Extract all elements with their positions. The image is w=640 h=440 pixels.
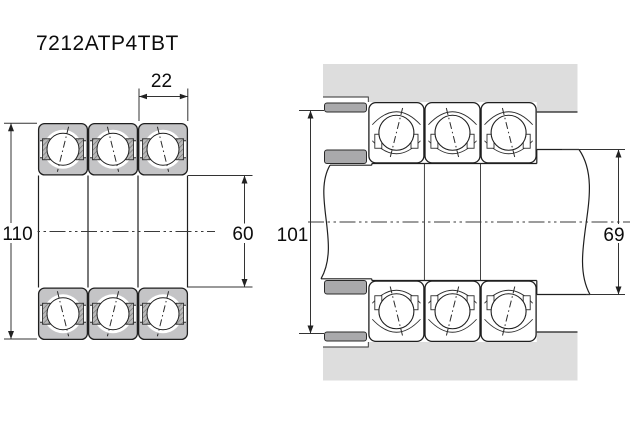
bearing-cell <box>369 103 424 163</box>
bearing-width-label: 22 <box>151 71 172 92</box>
bore-diameter-label: 60 <box>232 224 253 245</box>
dim-outer-diameter: 110 <box>1 123 37 339</box>
bearing-cell <box>425 281 480 341</box>
dim-bore-diameter: 60 <box>188 176 255 288</box>
bearing-cell <box>139 124 188 175</box>
bearing-cell <box>39 124 88 175</box>
bearing-cell <box>481 103 536 163</box>
inner-spacer-top <box>325 150 367 164</box>
bearing-cell <box>39 288 88 339</box>
arrow-up-icon <box>8 123 14 131</box>
arrow-up-icon <box>242 176 248 184</box>
abutment-diameter-label: 101 <box>277 225 309 246</box>
bearing-cell <box>89 124 138 175</box>
ball <box>147 133 179 165</box>
inner-spacer-bottom <box>325 281 367 295</box>
arrow-down-icon <box>616 287 622 295</box>
arrow-down-icon <box>308 326 314 334</box>
outer-spacer-bottom <box>325 332 367 341</box>
ball <box>97 298 129 330</box>
outer-spacer-top <box>325 103 367 112</box>
ball <box>97 133 129 165</box>
ball <box>47 133 79 165</box>
dim-bearing-width: 22 <box>139 71 188 121</box>
mounting-view: 101 69 <box>277 64 630 381</box>
bearing-cell <box>425 103 480 163</box>
ball <box>147 298 179 330</box>
arrow-up-icon <box>616 150 622 158</box>
shaft-shoulder-label: 69 <box>603 225 624 246</box>
arrow-right-icon <box>180 94 188 100</box>
bearing-cell <box>89 288 138 339</box>
arrow-down-icon <box>242 279 248 287</box>
arrow-down-icon <box>8 331 14 339</box>
arrow-up-icon <box>308 111 314 119</box>
part-number-title: 7212ATP4TBT <box>36 32 179 55</box>
outer-diameter-label: 110 <box>2 224 32 245</box>
ball <box>47 298 79 330</box>
bearing-set-view: 110 60 22 <box>1 71 255 339</box>
arrow-left-icon <box>139 94 147 100</box>
bearing-cell <box>139 288 188 339</box>
bearing-cell <box>369 281 424 341</box>
bearing-cell <box>481 281 536 341</box>
bearing-technical-drawing: 7212ATP4TBT 110 6 <box>0 0 640 440</box>
